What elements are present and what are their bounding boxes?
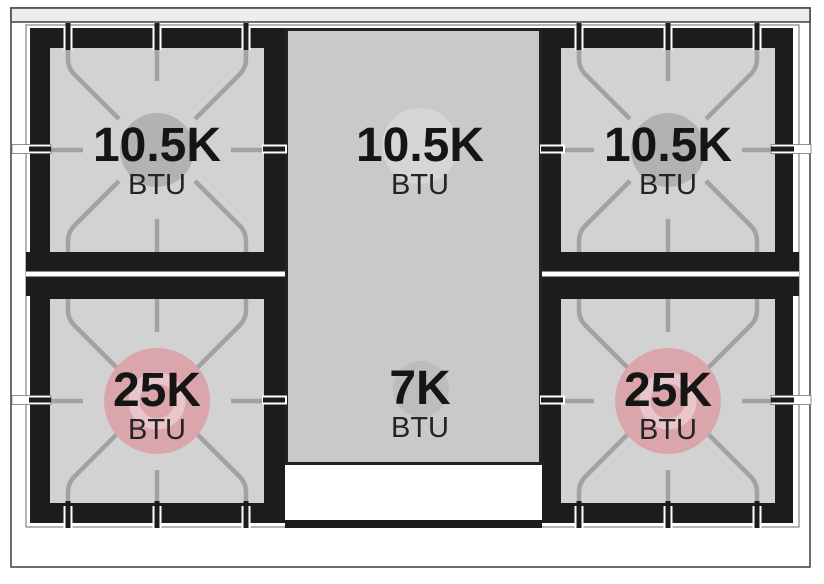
burner-unit-left-front: BTU (113, 415, 201, 446)
cooktop-diagram: 10.5K BTU 10.5K BTU 10.5K BTU 25K BTU 7K… (0, 0, 824, 584)
burner-label-center-rear: 10.5K BTU (356, 122, 484, 201)
burner-output-center-rear: 10.5K (356, 122, 484, 170)
burner-output-left-front: 25K (113, 367, 201, 415)
burner-output-right-rear: 10.5K (604, 122, 732, 170)
burner-label-left-rear: 10.5K BTU (93, 122, 221, 201)
burner-output-left-rear: 10.5K (93, 122, 221, 170)
back-trim-band (11, 8, 810, 22)
burner-output-center-front: 7K (389, 365, 450, 413)
griddle-front-edge (285, 520, 542, 528)
burner-label-left-front: 25K BTU (113, 367, 201, 446)
burner-unit-right-rear: BTU (604, 170, 732, 201)
burner-label-right-front: 25K BTU (624, 367, 712, 446)
burner-unit-center-front: BTU (389, 413, 450, 444)
burner-output-right-front: 25K (624, 367, 712, 415)
burner-label-center-front: 7K BTU (389, 365, 450, 444)
burner-unit-left-rear: BTU (93, 170, 221, 201)
cooktop-drawing (0, 0, 824, 584)
griddle-front-strip (288, 465, 539, 520)
burner-unit-center-rear: BTU (356, 170, 484, 201)
burner-unit-right-front: BTU (624, 415, 712, 446)
burner-label-right-rear: 10.5K BTU (604, 122, 732, 201)
